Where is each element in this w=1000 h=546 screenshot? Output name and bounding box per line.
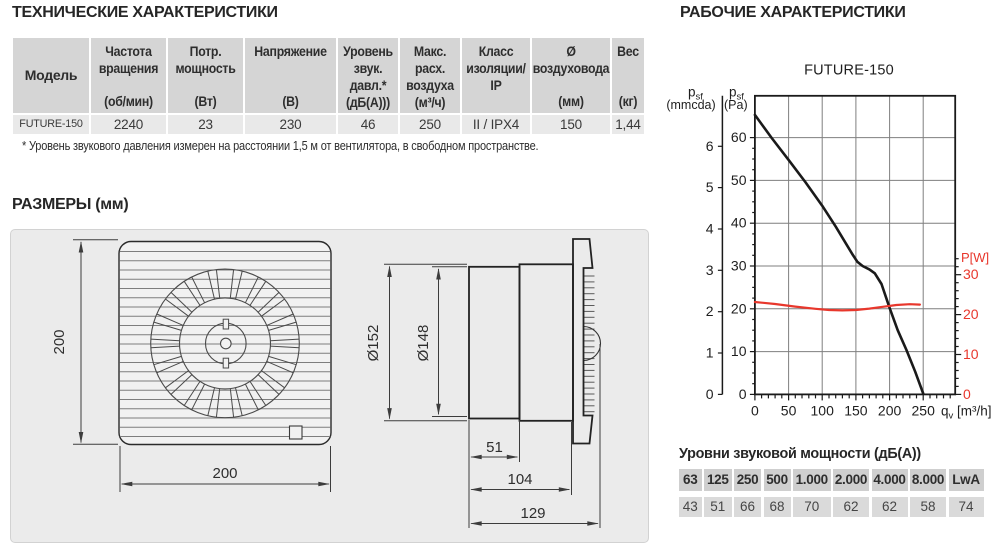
svg-text:qv [m³/h]: qv [m³/h] (941, 404, 992, 422)
svg-text:30: 30 (731, 258, 747, 274)
svg-text:0: 0 (739, 386, 747, 402)
svg-text:129: 129 (520, 505, 545, 522)
svg-text:50: 50 (731, 172, 747, 188)
svg-text:10: 10 (963, 346, 979, 362)
svg-text:(Pa): (Pa) (724, 98, 748, 112)
svg-text:20: 20 (963, 306, 979, 322)
svg-text:30: 30 (963, 266, 979, 282)
svg-text:60: 60 (731, 129, 747, 145)
svg-text:20: 20 (731, 300, 747, 316)
svg-text:100: 100 (811, 403, 835, 419)
svg-text:150: 150 (844, 403, 868, 419)
svg-text:(mmcda): (mmcda) (666, 98, 715, 112)
svg-text:200: 200 (51, 329, 68, 354)
svg-text:5: 5 (706, 179, 714, 195)
svg-text:0: 0 (706, 386, 714, 402)
svg-text:104: 104 (507, 471, 532, 488)
svg-text:0: 0 (963, 386, 971, 402)
svg-text:P[W]: P[W] (961, 250, 989, 265)
svg-text:4: 4 (706, 221, 714, 237)
svg-text:50: 50 (781, 403, 797, 419)
svg-text:250: 250 (912, 403, 936, 419)
svg-text:Ø152: Ø152 (365, 325, 382, 362)
svg-text:200: 200 (878, 403, 902, 419)
svg-text:1: 1 (706, 345, 714, 361)
svg-text:200: 200 (212, 465, 237, 482)
svg-text:10: 10 (731, 343, 747, 359)
svg-text:6: 6 (706, 138, 714, 154)
svg-text:40: 40 (731, 215, 747, 231)
svg-text:51: 51 (486, 439, 503, 456)
svg-text:Ø148: Ø148 (415, 325, 432, 362)
svg-text:2: 2 (706, 303, 714, 319)
svg-text:0: 0 (751, 403, 759, 419)
svg-text:FUTURE-150: FUTURE-150 (804, 63, 894, 79)
svg-text:3: 3 (706, 262, 714, 278)
